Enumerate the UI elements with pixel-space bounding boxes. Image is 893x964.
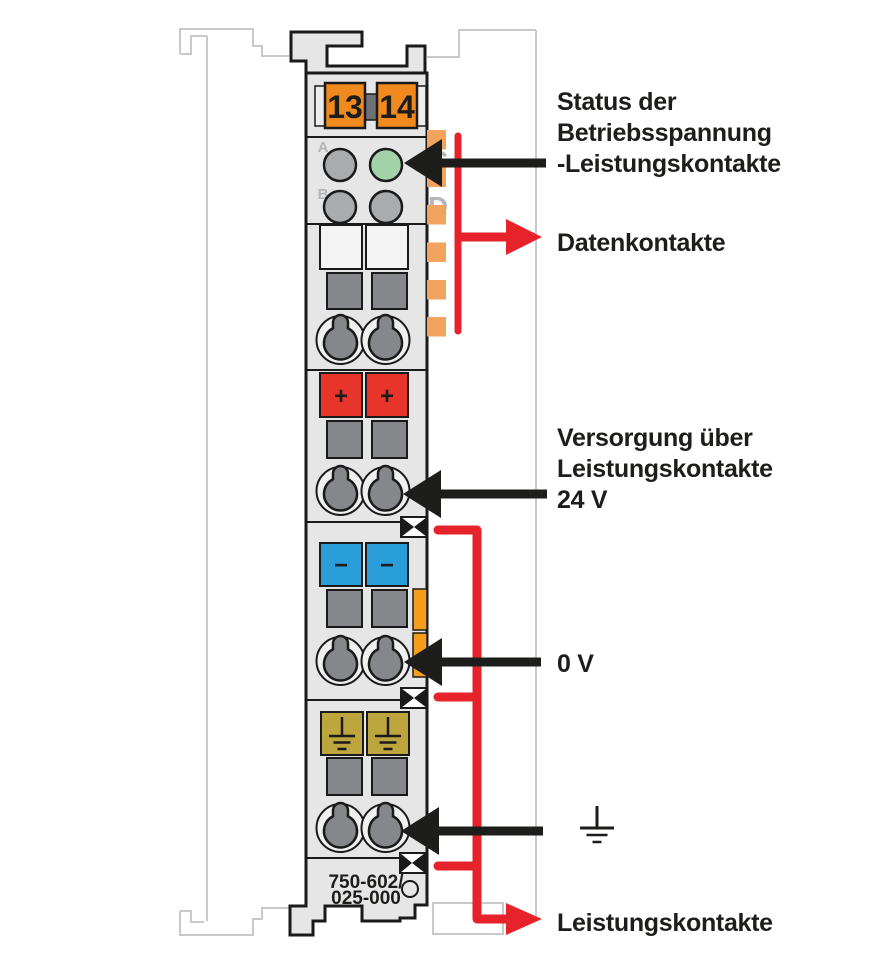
terminal-13-number: 13 [327, 89, 363, 125]
ghost-left-top-profile [180, 29, 289, 56]
led-a-indicator [324, 149, 356, 181]
data-contact-tab [427, 280, 446, 300]
adjacent-module-outline-left [180, 29, 289, 935]
power-contacts-line [438, 530, 508, 919]
power-contacts-label: Leistungskontakte [557, 909, 773, 937]
status-label-line-2: Betriebsspannung [557, 119, 772, 147]
earth-symbol [580, 806, 614, 842]
plus-symbol: + [334, 383, 348, 410]
jumper-contact-2 [401, 688, 427, 708]
earth-group [317, 712, 410, 852]
data-contact-tab [427, 243, 446, 263]
text-annotations: Status der Betriebsspannung -Leistungsko… [557, 88, 781, 937]
minus-symbol: − [380, 552, 394, 579]
data-contacts-label: Datenkontakte [557, 229, 726, 257]
led-b-indicator [324, 191, 356, 223]
jumper-contact-3 [400, 853, 425, 873]
supply-plus-group: + + [317, 373, 410, 515]
latch-hole [402, 881, 418, 897]
wago-terminal-block-diagram: 13 14 A B C D + [0, 0, 893, 964]
red-annotation-lines [438, 136, 542, 935]
wire-entry [372, 590, 407, 627]
terminal-side-tab [315, 86, 325, 126]
data-contact-tab [427, 317, 446, 337]
supply-label-line-3: 24 V [557, 486, 608, 514]
status-label-line-3: -Leistungskontakte [557, 150, 781, 178]
wire-entry [327, 758, 362, 795]
terminal-side-tab [417, 86, 426, 126]
led-label-a: A [318, 139, 329, 156]
ghost-left-bottom-hook [180, 911, 204, 922]
lever-upper [413, 589, 427, 630]
supply-label-line-1: Versorgung über [557, 424, 753, 452]
diagram-canvas: 13 14 A B C D + [0, 0, 893, 964]
zero-volt-label: 0 V [557, 650, 594, 678]
ghost-left-top-hook [180, 36, 207, 54]
plus-symbol: + [380, 383, 394, 410]
wire-entry [327, 421, 362, 458]
terminal-14-number: 14 [379, 89, 415, 125]
wire-entry [327, 273, 362, 309]
wire-entry [372, 273, 407, 309]
push-button [366, 225, 408, 269]
supply-label-line-2: Leistungskontakte [557, 455, 773, 483]
status-label-line-1: Status der [557, 88, 677, 116]
wire-entry [327, 590, 362, 627]
supply-minus-group: − − [317, 543, 410, 685]
wire-entry [372, 758, 407, 795]
module-order-number-line2: 025-000 [331, 888, 401, 909]
minus-symbol: − [334, 552, 348, 579]
data-contact-tab [427, 205, 446, 225]
push-button [320, 225, 362, 269]
ghost-right-top-profile [427, 30, 536, 57]
pushbutton-group-top [317, 225, 410, 364]
wire-entry [372, 421, 407, 458]
led-c-indicator-green [370, 149, 402, 181]
led-d-indicator [370, 191, 402, 223]
jumper-contact-1 [401, 517, 427, 537]
